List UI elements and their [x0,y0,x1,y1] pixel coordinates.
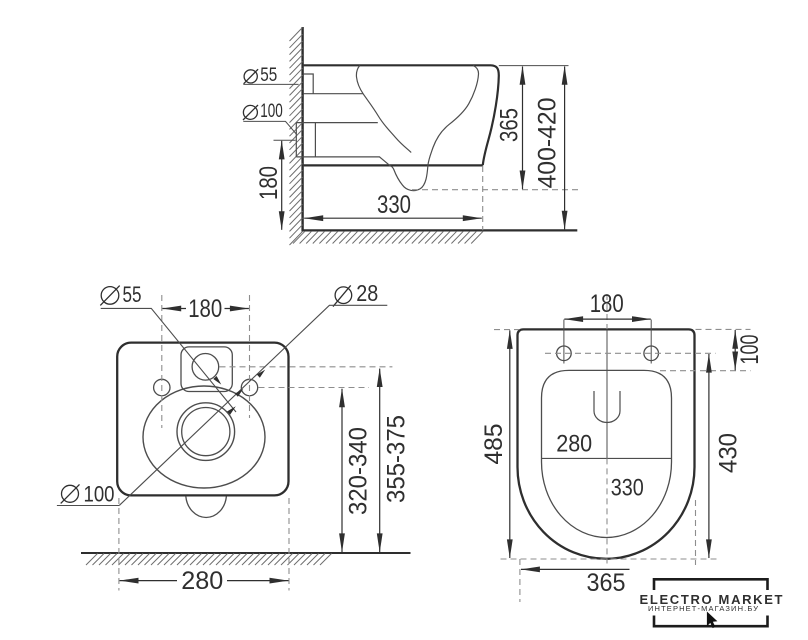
svg-text:330: 330 [611,475,644,502]
svg-text:430: 430 [715,433,743,473]
svg-text:180: 180 [590,290,624,318]
svg-text:320-340: 320-340 [345,427,373,515]
svg-text:365: 365 [496,108,524,142]
svg-text:28: 28 [356,280,378,306]
svg-text:330: 330 [377,191,411,219]
svg-text:100: 100 [260,101,283,122]
svg-text:100: 100 [736,335,764,365]
svg-text:365: 365 [587,569,626,597]
svg-text:280: 280 [556,431,592,458]
svg-text:ИНТЕРНЕТ-МАГАЗИН.БУ: ИНТЕРНЕТ-МАГАЗИН.БУ [648,604,758,613]
svg-text:355-375: 355-375 [382,415,410,503]
svg-text:180: 180 [255,166,283,200]
svg-text:180: 180 [188,295,222,323]
svg-text:55: 55 [123,282,142,307]
svg-text:400-420: 400-420 [534,98,562,189]
svg-text:55: 55 [260,65,277,86]
svg-text:485: 485 [480,424,508,465]
svg-text:100: 100 [84,482,115,507]
svg-text:280: 280 [181,567,223,595]
